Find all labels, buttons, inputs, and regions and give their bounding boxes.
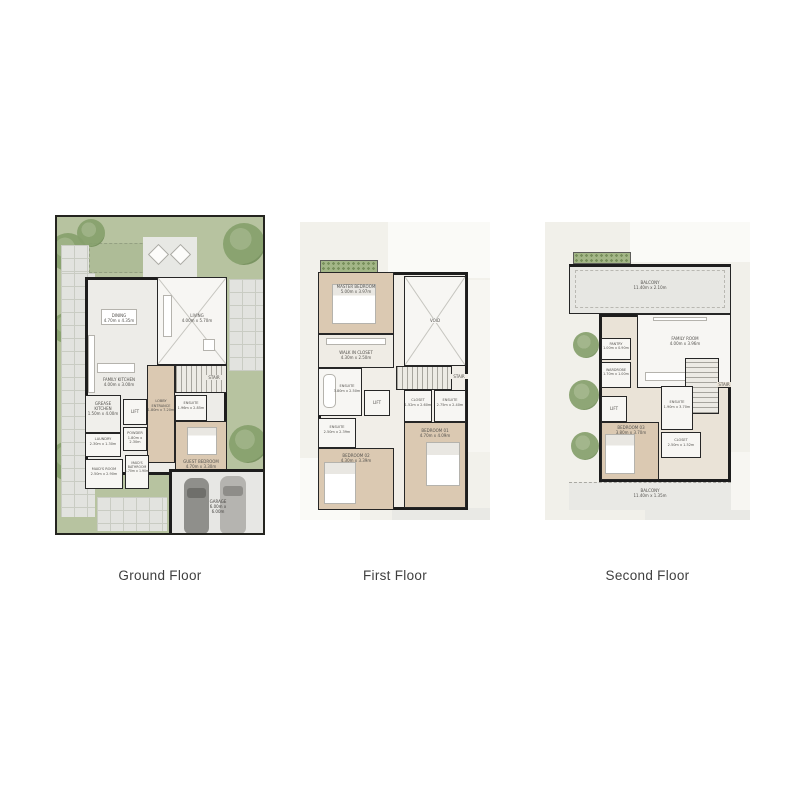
bed <box>187 427 217 455</box>
second-room-wardrobe <box>601 362 631 388</box>
ground-room-laundry <box>85 433 121 457</box>
kitchen-counter <box>88 335 95 393</box>
paving <box>61 245 89 273</box>
ground-room-lift <box>123 399 147 425</box>
first-room-void <box>404 276 466 366</box>
ground-room-maids-bath <box>125 455 149 489</box>
ground-room-powder <box>123 427 147 451</box>
wardrobe-counter <box>326 338 386 345</box>
tv-console <box>653 317 707 321</box>
first-floor-plan: MASTER BEDROOM 5.00m x 3.97m VOID WALK I… <box>300 222 490 520</box>
backdrop-patch <box>468 280 490 452</box>
void-cross-icon <box>405 277 465 365</box>
backdrop-patch <box>388 222 490 278</box>
coffee-table <box>203 339 215 351</box>
backdrop-patch <box>630 222 750 262</box>
second-room-pantry <box>601 338 631 360</box>
bed <box>426 442 460 486</box>
ground-room-grease-kitchen <box>85 395 121 433</box>
second-room-ensuite <box>661 386 693 430</box>
patio <box>143 237 197 281</box>
ground-floor-plan: LIVING 4.00m x 5.70m DINING 4.70m x 4.35… <box>55 215 265 535</box>
planter-box <box>573 252 631 264</box>
car-icon <box>220 476 246 534</box>
ground-room-maids-room <box>85 459 123 489</box>
sofa <box>163 295 172 337</box>
car-windshield <box>223 486 243 496</box>
ground-stair <box>175 365 227 393</box>
first-room-ensuite-b2 <box>318 418 356 448</box>
first-stair <box>396 366 452 390</box>
paving <box>229 279 263 371</box>
ground-room-ensuite <box>175 395 207 421</box>
tree-icon <box>573 332 599 358</box>
bed <box>605 434 635 474</box>
tree-icon <box>223 223 265 265</box>
dining-table <box>101 309 137 325</box>
first-floor-caption: First Floor <box>300 568 490 583</box>
bed <box>324 462 356 504</box>
tree-icon <box>571 432 599 460</box>
ground-floor-caption: Ground Floor <box>55 568 265 583</box>
first-room-ensuite-b1 <box>434 390 466 422</box>
tree-icon <box>229 425 265 463</box>
tree-icon <box>569 380 599 410</box>
first-room-lift <box>364 390 390 416</box>
kitchen-island <box>97 363 135 373</box>
second-balcony-bottom <box>569 482 731 510</box>
ground-room-lobby <box>147 365 175 463</box>
car-icon <box>184 478 209 534</box>
second-room-closet <box>661 432 701 458</box>
first-room-closet-b1 <box>404 390 432 422</box>
ground-garage <box>169 469 265 535</box>
second-room-lift <box>601 396 627 422</box>
balcony-dashed-edge <box>575 270 725 308</box>
terrace-slab <box>645 510 750 520</box>
second-floor-caption: Second Floor <box>545 568 750 583</box>
paving <box>97 497 167 531</box>
bathtub <box>323 374 336 408</box>
bed <box>332 284 376 324</box>
tree-icon <box>77 219 105 247</box>
car-windshield <box>187 488 206 498</box>
second-floor-plan: BALCONY 11.40m x 2.10m FAMILY ROOM 4.00m… <box>545 222 750 520</box>
